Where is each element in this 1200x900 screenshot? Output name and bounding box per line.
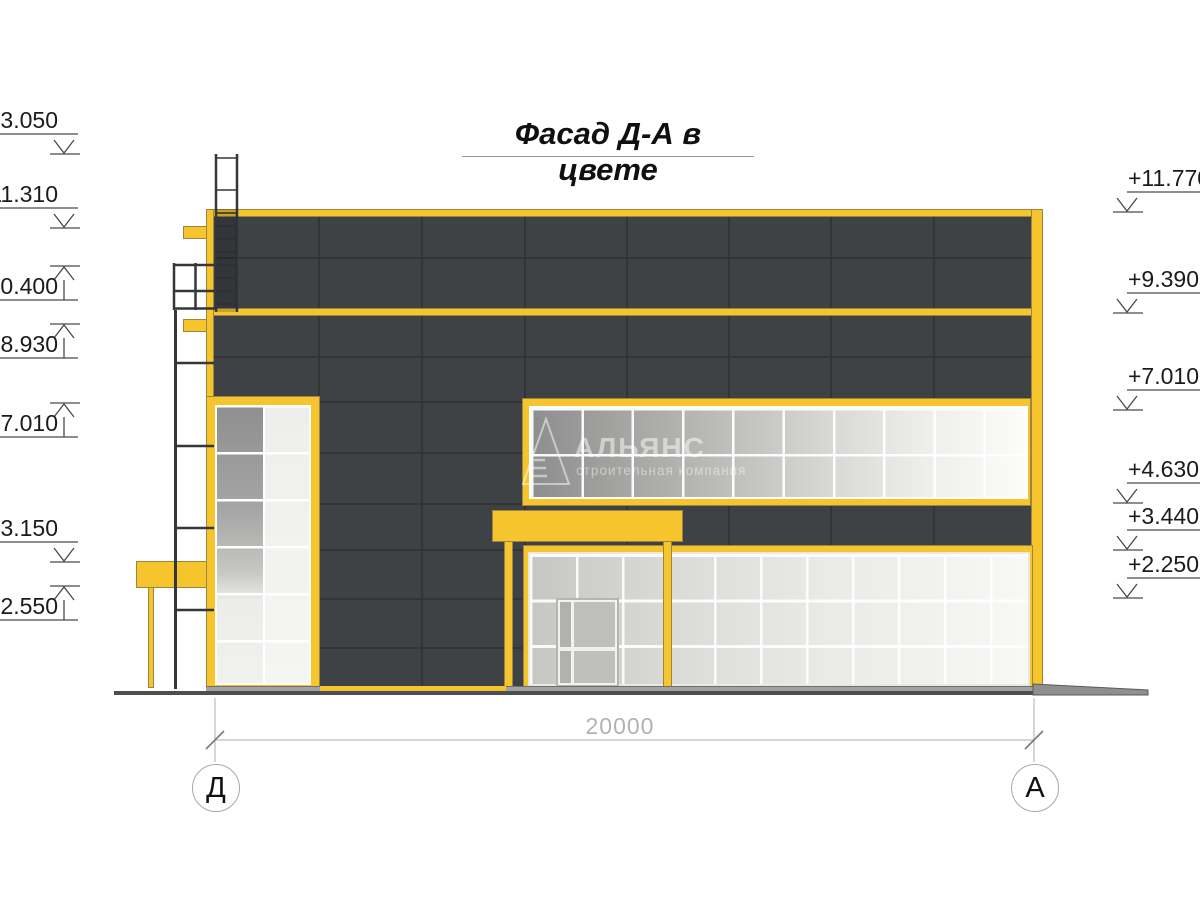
elevation-label-left-6: 2.550 xyxy=(0,593,58,619)
elevation-label-left-4: 7.010 xyxy=(0,410,58,436)
grade-ramp xyxy=(1033,684,1148,695)
elevation-label-left-3: 8.930 xyxy=(0,331,58,357)
elevation-label-right-5: +2.250 xyxy=(1128,551,1200,577)
elevation-label-left-0: 13.050 xyxy=(0,107,58,133)
watermark-company-name: АЛЬЯНС xyxy=(574,432,706,464)
elevation-label-right-4: +3.440 xyxy=(1128,503,1200,529)
watermark-company-subtitle: строительная компания xyxy=(576,463,747,478)
elevation-label-left-2: 10.400 xyxy=(0,273,58,299)
drawing-title: Фасад Д-А в цвете xyxy=(462,116,754,157)
wall-ladder-icon xyxy=(217,209,237,312)
elevation-label-left-1: 11.310 xyxy=(0,181,58,207)
axis-bubble-a: А xyxy=(1011,764,1059,812)
elevation-label-left-5: 3.150 xyxy=(0,515,58,541)
elevation-mark-left-0 xyxy=(0,134,80,154)
elevation-label-right-3: +4.630 xyxy=(1128,456,1200,482)
elevation-mark-left-1 xyxy=(0,208,80,228)
watermark-logo-icon xyxy=(523,419,569,484)
elevation-mark-right-0 xyxy=(1113,192,1200,212)
axis-label-a: А xyxy=(1025,772,1044,805)
elevation-mark-left-5 xyxy=(0,542,80,562)
overall-dimension-value: 20000 xyxy=(555,713,685,740)
elevation-mark-right-1 xyxy=(1113,293,1200,313)
axis-label-d: Д xyxy=(206,772,226,805)
elevation-label-right-2: +7.010 xyxy=(1128,363,1200,389)
elevation-label-right-1: +9.390 xyxy=(1128,266,1200,292)
facade-drawing-canvas: Фасад Д-А в цвете АЛЬЯНС строительная ко… xyxy=(0,0,1200,900)
elevation-mark-right-2 xyxy=(1113,390,1200,410)
elevation-label-right-0: +11.770 xyxy=(1128,165,1200,191)
elevation-mark-right-3 xyxy=(1113,483,1200,503)
platform-railing-icon xyxy=(173,263,217,310)
axis-bubble-d: Д xyxy=(192,764,240,812)
elevation-mark-right-4 xyxy=(1113,530,1200,550)
lower-ladder-icon xyxy=(175,310,214,689)
elevation-mark-right-5 xyxy=(1113,578,1200,598)
elevation-marks xyxy=(0,134,1200,620)
